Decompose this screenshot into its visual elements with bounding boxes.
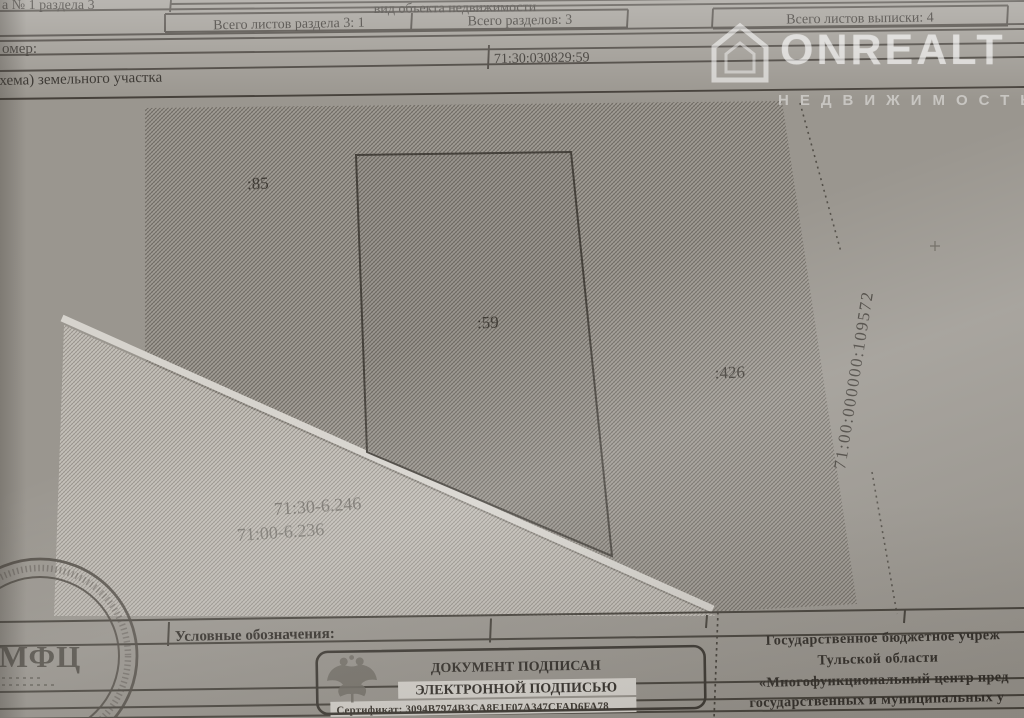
total-sheets-section-label: Всего листов раздела 3: 1 <box>213 16 365 34</box>
scanned-extract-page: а № 1 раздела 3 вид объекта недвижимости… <box>0 0 1024 718</box>
issuer-line-3: «Многофункциональный центр пред <box>759 669 1010 691</box>
coat-of-arms-icon <box>327 655 378 703</box>
signature-title-line1: ДОКУМЕНТ ПОДПИСАН <box>431 659 601 677</box>
total-sections-label: Всего разделов: 3 <box>468 13 573 30</box>
plan-scheme-title: (схема) земельного участка <box>0 70 163 90</box>
mfc-stamp-label: МФЦ <box>0 639 81 674</box>
issuer-line-1: Государственное бюджетное учреж <box>765 627 1000 649</box>
legend-caption: Условные обозначения: <box>175 626 335 645</box>
watermark: ONREALT НЕДВИЖИМОСТЬ <box>706 14 1024 118</box>
survey-cross-mark <box>930 241 940 251</box>
section-sheet-label: а № 1 раздела 3 <box>2 0 95 13</box>
issuer-line-2: Тульской области <box>817 650 938 669</box>
cadastral-number-value: 71:30:030829:59 <box>494 50 590 67</box>
mfc-stamp-marks <box>2 678 56 685</box>
house-icon <box>706 14 774 86</box>
parcel-85-label: :85 <box>247 174 269 194</box>
digital-signature-block: ДОКУМЕНТ ПОДПИСАН ЭЛЕКТРОННОЙ ПОДПИСЬЮ С… <box>317 646 706 717</box>
land-plot-drawing: :85 :59 :426 71:30-6.246 71:00-6.236 71:… <box>54 101 940 616</box>
parcel-426-label: :426 <box>714 362 745 382</box>
parcel-59-label: :59 <box>477 313 499 333</box>
watermark-brand: ONREALT <box>780 29 1006 72</box>
dotted-column-divider <box>714 612 718 718</box>
boundary-dotted-upper <box>800 103 841 252</box>
watermark-tagline: НЕДВИЖИМОСТЬ <box>778 92 1024 109</box>
cadastral-number-caption: омер: <box>2 41 37 57</box>
boundary-cadastral-label: 71:00:000000:109572 <box>830 289 877 470</box>
boundary-dotted-lower <box>872 472 897 614</box>
